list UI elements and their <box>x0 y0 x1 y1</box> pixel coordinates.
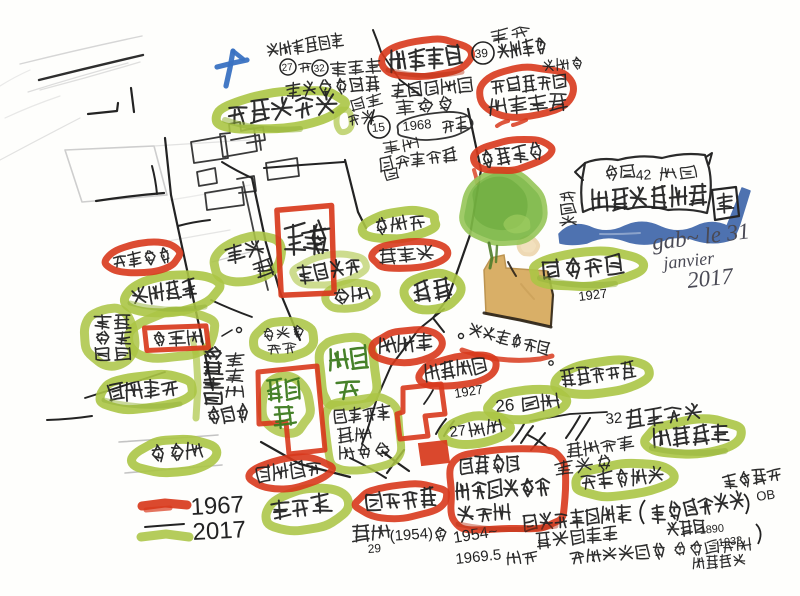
svg-text:(1954): (1954) <box>389 525 433 545</box>
svg-text:27: 27 <box>281 62 293 74</box>
svg-text:15: 15 <box>371 120 386 135</box>
svg-text:39: 39 <box>474 46 489 61</box>
svg-text:2017: 2017 <box>686 263 736 293</box>
svg-text:1968: 1968 <box>402 116 432 134</box>
svg-text:32: 32 <box>313 63 325 75</box>
svg-text:27: 27 <box>448 422 467 441</box>
svg-text:42: 42 <box>635 166 652 183</box>
svg-text:2017: 2017 <box>192 516 247 546</box>
svg-text:26: 26 <box>495 395 516 416</box>
svg-text:32: 32 <box>605 410 623 428</box>
svg-text:OB: OB <box>755 487 776 504</box>
svg-text:1890: 1890 <box>699 522 725 536</box>
svg-text:29: 29 <box>367 541 382 556</box>
